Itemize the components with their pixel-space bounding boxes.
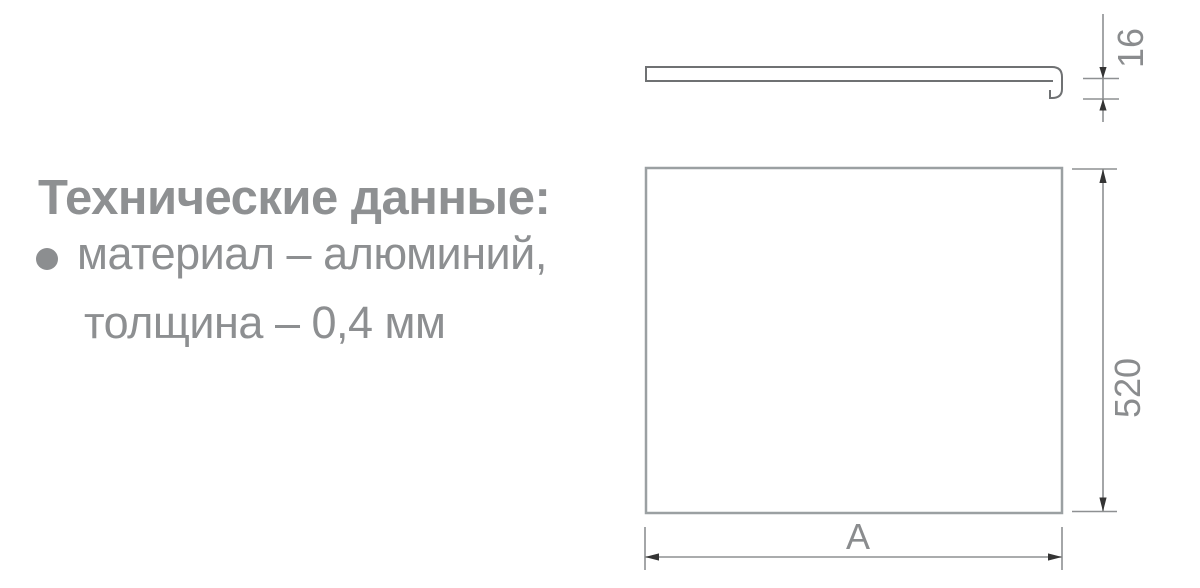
height-arrow-up-icon xyxy=(1099,169,1106,183)
thickness-dim-label: 16 xyxy=(1110,28,1151,68)
width-dimension: A xyxy=(645,516,1062,570)
thickness-arrow-down-icon xyxy=(1099,67,1106,79)
panel-front-view xyxy=(646,168,1062,513)
page: Технические данные: материал – алюминий,… xyxy=(0,0,1200,588)
side-view-top-edge xyxy=(646,67,1062,98)
technical-drawing: 16 520 A xyxy=(0,0,1200,588)
width-arrow-right-icon xyxy=(1048,553,1062,560)
thickness-dimension: 16 xyxy=(1083,14,1151,122)
height-dimension: 520 xyxy=(1072,169,1148,512)
width-dim-label: A xyxy=(846,516,870,557)
panel-side-view xyxy=(646,66,1062,98)
width-arrow-left-icon xyxy=(645,553,659,560)
height-arrow-down-icon xyxy=(1099,498,1106,512)
height-dim-label: 520 xyxy=(1107,358,1148,418)
thickness-arrow-up-icon xyxy=(1099,99,1106,111)
